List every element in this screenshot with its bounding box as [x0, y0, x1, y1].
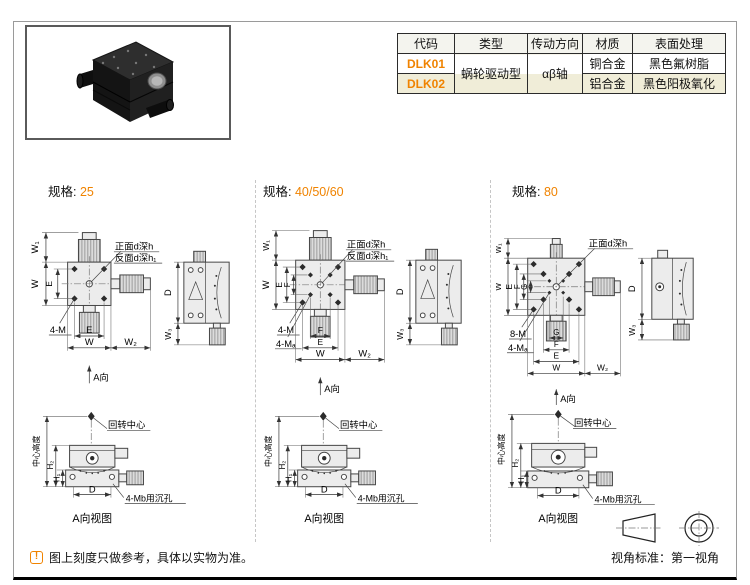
dim-label-h2: H₂ — [511, 459, 520, 468]
center-height-label: 中心高度 — [496, 433, 506, 465]
dim-label-d-side: D — [395, 288, 405, 295]
section-divider-1 — [255, 180, 256, 542]
a-view-caption: A向视图 — [538, 511, 578, 525]
first-angle-projection-icon — [616, 511, 719, 546]
view-arrow-label: A向 — [324, 383, 340, 394]
leader-back-hole: 反面d深h₁ — [347, 251, 389, 261]
dim-label-w3: W₃ — [627, 324, 637, 335]
dim-label-f: F — [283, 282, 292, 287]
spec-table: 代码 类型 传动方向 材质 表面处理 DLK01 蜗轮驱动型 αβ轴 铜合金 黑… — [397, 33, 726, 94]
dim-label-e-bottom: E — [318, 337, 324, 347]
leader-back-hole: 反面d深h₁ — [115, 253, 157, 263]
drawing-section-405060: W₁ W E F 正面d深h 反面d深h₁ 4-M 4-Mₐ F E W W₂ … — [262, 205, 484, 535]
warning-icon: ! — [30, 551, 43, 564]
rotation-center-label: 回转中心 — [574, 417, 612, 428]
dim-label-w-bottom: W — [85, 337, 94, 347]
col-header-type: 类型 — [455, 34, 528, 54]
spec-label: 规格: — [48, 185, 76, 199]
spec-heading-405060: 规格: 40/50/60 — [263, 181, 344, 200]
side-view-drawing: D W₃ — [627, 250, 693, 340]
col-header-material: 材质 — [583, 34, 633, 54]
cell-material-dlk01: 铜合金 — [583, 54, 633, 74]
footer-note-text: 图上刻度只做参考，具体以实物为准。 — [49, 549, 253, 566]
table-row-dlk01: DLK01 蜗轮驱动型 αβ轴 铜合金 黑色氟树脂 — [398, 54, 726, 74]
cell-finish-dlk01: 黑色氟树脂 — [633, 54, 726, 74]
a-view-caption: A向视图 — [72, 511, 112, 525]
top-view-drawing: W₁ W E F 正面d深h 反面d深h₁ 4-M 4-Mₐ F E W W₂ … — [262, 231, 394, 396]
dim-label-w1: W₁ — [262, 240, 271, 251]
view-standard-label: 视角标准：第一视角 — [611, 549, 719, 566]
view-arrow-label: A向 — [93, 371, 109, 382]
dim-label-d-side: D — [163, 289, 173, 296]
drawing-section-25: W₁ W E 正面d深h 反面d深h₁ 4-M E W W₂ A向 — [30, 205, 252, 535]
top-view-drawing: W₁ W E F G 正面d深h 8-M 4-Mₐ G F E W W₂ A向 — [496, 238, 633, 405]
spec-heading-25: 规格: 25 — [48, 181, 94, 200]
side-view-drawing: D W₃ — [163, 251, 229, 345]
spec-value: 40/50/60 — [295, 185, 344, 199]
dim-label-w2: W₂ — [124, 337, 137, 347]
dim-label-d-aview: D — [321, 485, 328, 495]
product-photo-image — [53, 30, 203, 135]
dim-label-w3: W₃ — [395, 328, 405, 339]
dim-label-d-aview: D — [89, 485, 96, 495]
thread-label-4ma: 4-Mₐ — [508, 343, 528, 353]
dim-label-d-side: D — [627, 285, 637, 292]
dim-label-e-bottom: E — [553, 351, 559, 361]
dim-label-w2: W₂ — [597, 362, 608, 372]
leader-front-hole: 正面d深h — [589, 238, 627, 248]
spec-label: 规格: — [512, 185, 540, 199]
counterbore-label: 4-Mb用沉孔 — [126, 494, 173, 504]
dim-label-w: W — [496, 283, 503, 291]
drawing-section-80: W₁ W E F G 正面d深h 8-M 4-Mₐ G F E W W₂ A向 — [496, 205, 718, 535]
a-view-drawing: 回转中心 中心高度 H₂ H₁ D 4-Mb用沉孔 A向视图 — [263, 412, 418, 525]
dim-label-f-bottom: F — [318, 325, 323, 335]
dim-label-e-bottom: E — [86, 325, 92, 335]
cell-material-dlk02: 铝合金 — [583, 74, 633, 94]
a-view-caption: A向视图 — [304, 511, 344, 525]
dim-label-h1: H₁ — [517, 474, 526, 483]
side-view-drawing: D W₃ — [395, 249, 461, 345]
dim-label-w2: W₂ — [358, 349, 371, 359]
rotation-center-label: 回转中心 — [340, 419, 378, 430]
spec-heading-80: 规格: 80 — [512, 181, 558, 200]
section-divider-2 — [490, 180, 491, 542]
center-height-label: 中心高度 — [31, 435, 41, 467]
dim-label-e: E — [44, 281, 54, 287]
dim-label-h1: H₁ — [285, 473, 294, 482]
rotation-center-label: 回转中心 — [108, 419, 146, 430]
footer-note: ! 图上刻度只做参考，具体以实物为准。 — [30, 549, 253, 566]
thread-label-4ma: 4-Mₐ — [276, 339, 296, 349]
col-header-code: 代码 — [398, 34, 455, 54]
dim-label-w: W — [262, 280, 271, 289]
top-view-drawing: W₁ W E 正面d深h 反面d深h₁ 4-M E W W₂ A向 — [30, 233, 162, 384]
spec-value: 25 — [80, 185, 94, 199]
a-view-drawing: 回转中心 中心高度 H₂ H₁ D 4-Mb用沉孔 A向视图 — [31, 412, 186, 525]
spec-table-header-row: 代码 类型 传动方向 材质 表面处理 — [398, 34, 726, 54]
counterbore-label: 4-Mb用沉孔 — [358, 494, 405, 504]
product-photo-box — [25, 25, 231, 140]
counterbore-label: 4-Mb用沉孔 — [595, 494, 642, 504]
dim-label-h2: H₂ — [278, 461, 287, 470]
dim-label-w1: W₁ — [496, 243, 503, 253]
dim-label-w-bottom: W — [316, 349, 325, 359]
a-view-drawing: 回转中心 中心高度 H₂ H₁ D 4-Mb用沉孔 A向视图 — [496, 410, 655, 525]
dim-label-d-aview: D — [555, 486, 562, 496]
col-header-finish: 表面处理 — [633, 34, 726, 54]
dim-label-w3: W₃ — [163, 328, 173, 339]
spec-value: 80 — [544, 185, 558, 199]
col-header-direction: 传动方向 — [528, 34, 583, 54]
spec-label: 规格: — [263, 185, 291, 199]
center-height-label: 中心高度 — [263, 435, 273, 467]
cell-type: 蜗轮驱动型 — [455, 54, 528, 94]
dim-label-w: W — [30, 279, 40, 288]
cell-code-dlk02: DLK02 — [398, 74, 455, 94]
thread-label-4m: 4-M — [50, 325, 66, 335]
stage-photo-illustration — [77, 42, 174, 122]
view-arrow-label: A向 — [560, 393, 576, 404]
dim-label-g-bottom: G — [553, 328, 559, 337]
leader-front-hole: 正面d深h — [347, 239, 385, 249]
dim-label-w1: W₁ — [30, 241, 40, 253]
leader-front-hole: 正面d深h — [115, 241, 153, 251]
dim-label-h1: H₁ — [53, 473, 62, 482]
dim-label-f-bottom: F — [554, 340, 559, 349]
dim-label-h2: H₂ — [46, 461, 55, 470]
dim-label-w-bottom: W — [552, 362, 560, 372]
cell-finish-dlk02: 黑色阳极氧化 — [633, 74, 726, 94]
cell-direction: αβ轴 — [528, 54, 583, 94]
dim-label-g: G — [520, 284, 529, 290]
projection-symbols — [615, 511, 727, 547]
cell-code-dlk01: DLK01 — [398, 54, 455, 74]
